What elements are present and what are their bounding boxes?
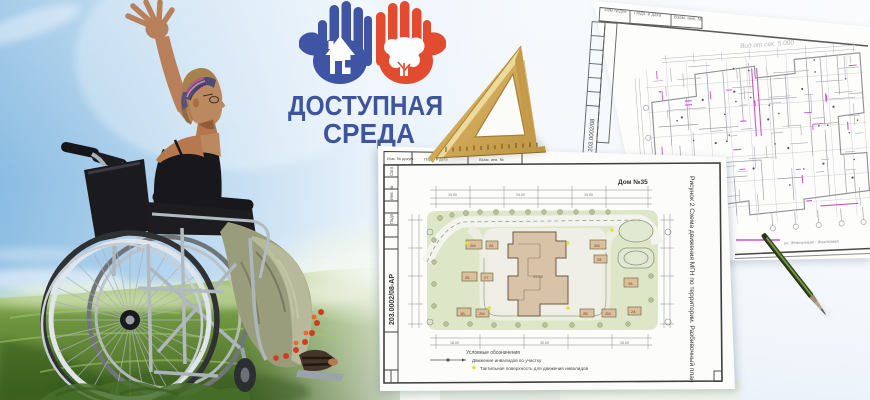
svg-text:30.00: 30.00 [540,341,549,345]
svg-text:26: 26 [465,275,470,280]
svg-text:203.0002/08-АР: 203.0002/08-АР [389,274,396,325]
svg-text:ДОСТУПНАЯ: ДОСТУПНАЯ [288,90,443,121]
svg-text:24: 24 [631,309,636,314]
svg-text:СРЕДА: СРЕДА [323,118,415,149]
svg-text:18.00: 18.00 [450,341,459,345]
svg-text:Согл.: Согл. [389,166,394,176]
svg-text:1Б: 1Б [460,311,465,316]
svg-text:Рисунок 2 Схема движения МГ: Рисунок 2 Схема движения МГН по территор… [688,176,696,383]
svg-text:15.00: 15.00 [448,193,457,197]
svg-text:Дом №35: Дом №35 [618,179,648,186]
svg-text:24.00: 24.00 [516,193,525,197]
svg-text:2М: 2М [594,243,600,248]
svg-text:2М: 2М [470,243,476,248]
svg-text:Изм. № докум.: Изм. № докум. [387,156,414,161]
svg-text:25.00: 25.00 [533,274,544,279]
svg-text:15.00: 15.00 [584,193,593,197]
svg-text:Условные обозначения: Условные обозначения [466,350,520,356]
svg-text:28: 28 [597,257,602,262]
svg-text:28: 28 [628,281,633,286]
svg-text:Подп.: Подп. [389,213,394,224]
svg-text:2М: 2М [479,311,485,316]
svg-text:Тактильная поверхность для дви: Тактильная поверхность для движения инва… [480,366,589,371]
svg-text:Движение инвалидов по участку: Движение инвалидов по участку [472,358,542,363]
svg-text:2Б: 2Б [583,311,588,316]
svg-text:2М: 2М [605,311,611,316]
svg-text:Инв. №: Инв. № [389,185,394,200]
svg-text:18.00: 18.00 [620,341,629,345]
svg-text:28: 28 [489,243,494,248]
svg-text:27: 27 [484,275,489,280]
